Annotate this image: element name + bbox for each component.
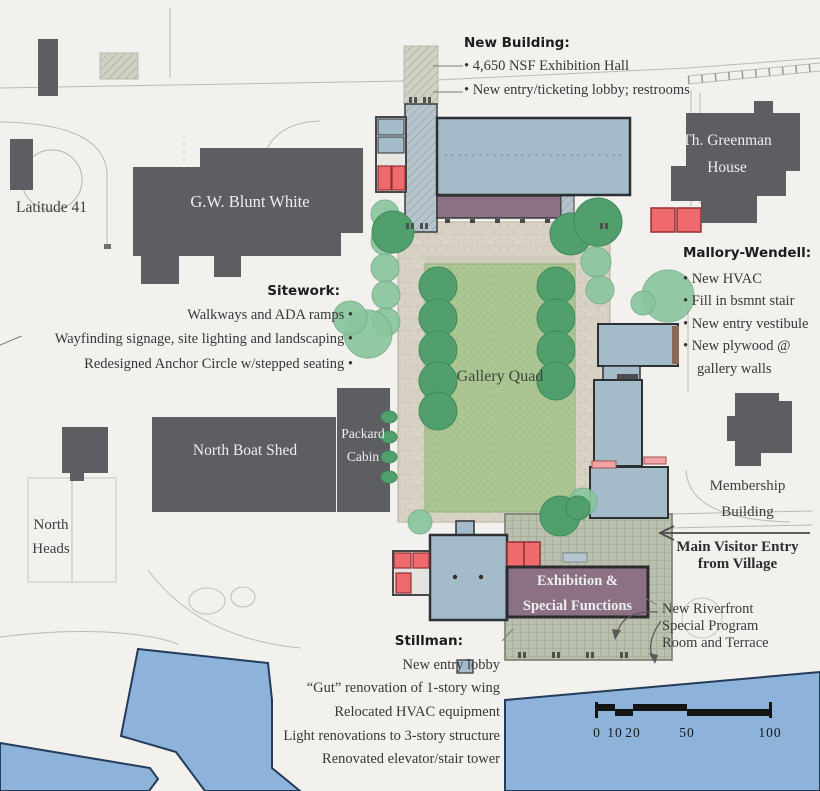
stillman-item: Relocated HVAC equipment <box>260 704 500 721</box>
greenman-house-label: Th. Greenman House <box>662 132 792 177</box>
sitework-item: Wayfinding signage, site lighting and la… <box>0 331 353 348</box>
sitework-heading: Sitework: <box>0 284 353 300</box>
exhibition-label: Exhibition & Special Functions <box>507 573 648 614</box>
riverfront-line: New Riverfront <box>662 601 769 618</box>
entry-crosswalk-hatch <box>404 46 438 104</box>
membership-line: Membership <box>690 478 805 495</box>
membership-building-label: Membership Building <box>690 478 805 522</box>
stillman-item: Renovated elevator/stair tower <box>260 751 500 768</box>
scale-label: 0 <box>590 725 604 741</box>
packard-line: Cabin <box>332 449 394 465</box>
gw-blunt-white-label: G.W. Blunt White <box>150 193 350 212</box>
crosswalk-hatch <box>100 53 138 79</box>
visitor-entry-note: Main Visitor Entry from Village <box>660 539 815 574</box>
greenman-line: House <box>662 159 792 177</box>
north-boat-shed-label: North Boat Shed <box>155 442 335 460</box>
visitor-entry-line: from Village <box>660 556 815 573</box>
greenman-line: Th. Greenman <box>662 132 792 150</box>
exhibition-line: Exhibition & <box>507 573 648 590</box>
exhibition-line: Special Functions <box>507 598 648 615</box>
visitor-entry-line: Main Visitor Entry <box>660 539 815 556</box>
scale-label: 50 <box>677 725 697 741</box>
site-plan: New Building: • 4,650 NSF Exhibition Hal… <box>0 0 820 791</box>
north-heads-line: Heads <box>18 541 84 558</box>
riverfront-line: Room and Terrace <box>662 635 769 652</box>
mallory-wendell-item: • New HVAC <box>683 268 820 291</box>
stillman-item: “Gut” renovation of 1-story wing <box>260 680 500 697</box>
mallory-wendell-item: • Fill in bsmnt stair <box>683 290 820 313</box>
new-building-note: New Building: • 4,650 NSF Exhibition Hal… <box>464 36 690 99</box>
membership-line: Building <box>690 504 805 521</box>
sitework-item: Walkways and ADA ramps • <box>0 307 353 324</box>
packard-cabin-label: Packard Cabin <box>332 426 394 464</box>
riverfront-note: New Riverfront Special Program Room and … <box>662 601 769 652</box>
scale-label: 10 <box>605 725 625 741</box>
north-heads-line: North <box>18 517 84 534</box>
covered-walk <box>437 196 574 223</box>
sitework-item: Redesigned Anchor Circle w/stepped seati… <box>0 356 353 373</box>
scale-label: 20 <box>623 725 643 741</box>
riverfront-line: Special Program <box>662 618 769 635</box>
sitework-note: Sitework: Walkways and ADA ramps • Wayfi… <box>0 284 353 373</box>
stillman-heading: Stillman: <box>260 634 500 650</box>
packard-line: Packard <box>332 426 394 442</box>
gallery-quad-label: Gallery Quad <box>420 368 580 386</box>
scale-label: 100 <box>755 725 785 741</box>
stillman-item: Light renovations to 3-story structure <box>260 728 500 745</box>
new-building-item: • New entry/ticketing lobby; restrooms <box>464 82 690 99</box>
mallory-wendell-buildings <box>590 324 679 518</box>
latitude-41-label: Latitude 41 <box>16 199 87 217</box>
stillman-item: New entry lobby <box>260 657 500 674</box>
mallory-wendell-note: Mallory-Wendell: • New HVAC • Fill in bs… <box>683 246 820 381</box>
stillman-note: Stillman: New entry lobby “Gut” renovati… <box>260 634 500 768</box>
new-building-item: • 4,650 NSF Exhibition Hall <box>464 58 690 75</box>
new-building-heading: New Building: <box>464 36 690 52</box>
mallory-wendell-heading: Mallory-Wendell: <box>683 246 820 262</box>
entry-lobby-strip <box>405 104 437 232</box>
mallory-wendell-item: • New entry vestibule <box>683 313 820 336</box>
mallory-wendell-item: • New plywood @ gallery walls <box>683 335 820 380</box>
north-heads-label: North Heads <box>18 517 84 559</box>
